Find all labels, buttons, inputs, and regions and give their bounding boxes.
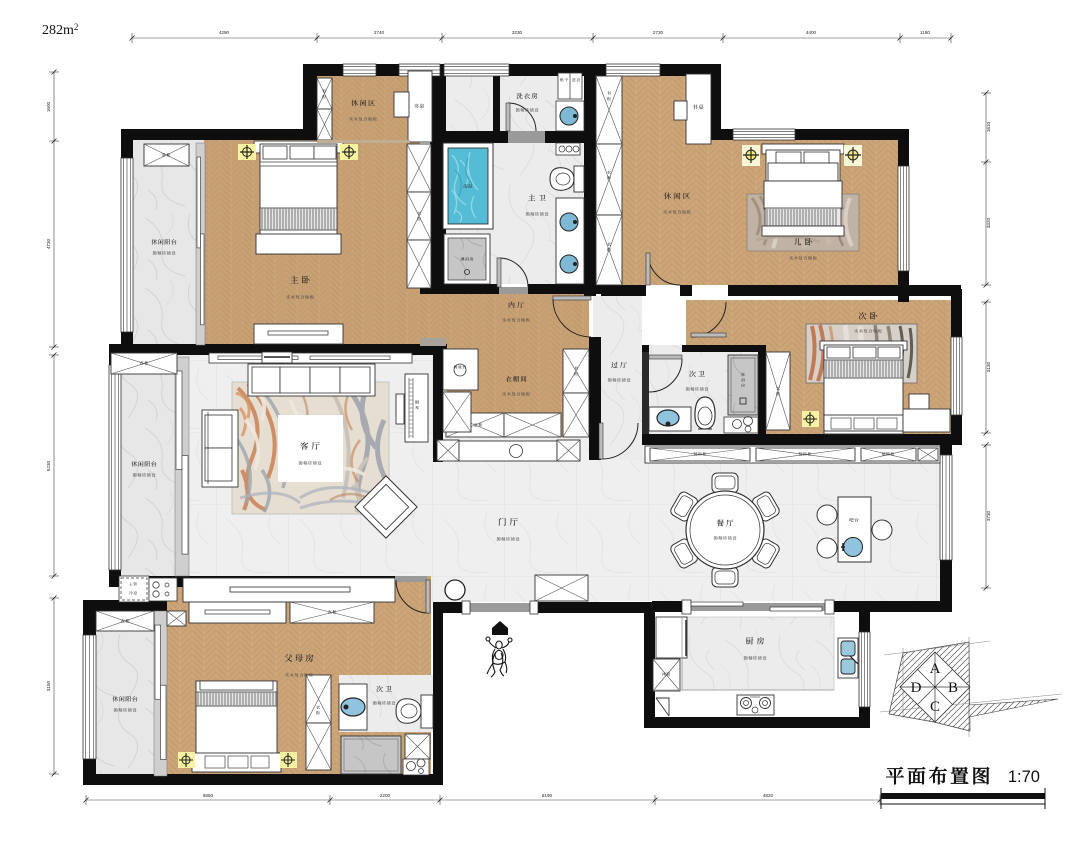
svg-text:2730: 2730 (653, 30, 664, 35)
svg-text:2740: 2740 (374, 30, 385, 35)
svg-text:1600: 1600 (46, 101, 51, 112)
svg-text:5230: 5230 (46, 460, 51, 471)
svg-text:D: D (911, 680, 922, 696)
svg-text:C: C (930, 699, 940, 715)
svg-text:B: B (948, 680, 958, 696)
svg-text:3130: 3130 (986, 361, 991, 372)
svg-text:1:70: 1:70 (1008, 768, 1040, 786)
svg-text:1180: 1180 (920, 30, 930, 35)
svg-text:1610: 1610 (986, 121, 991, 132)
svg-text:3730: 3730 (986, 510, 991, 521)
svg-text:3150: 3150 (46, 680, 51, 691)
svg-text:5850: 5850 (203, 793, 214, 798)
svg-text:A: A (930, 661, 941, 677)
svg-text:4290: 4290 (219, 30, 230, 35)
svg-text:4820: 4820 (763, 793, 774, 798)
svg-text:6190: 6190 (542, 793, 553, 798)
svg-text:2200: 2200 (380, 793, 391, 798)
svg-text:3230: 3230 (512, 30, 523, 35)
svg-text:3320: 3320 (986, 217, 991, 228)
svg-text:282m2: 282m2 (42, 22, 78, 38)
svg-text:4400: 4400 (806, 30, 817, 35)
svg-text:4730: 4730 (46, 238, 51, 249)
